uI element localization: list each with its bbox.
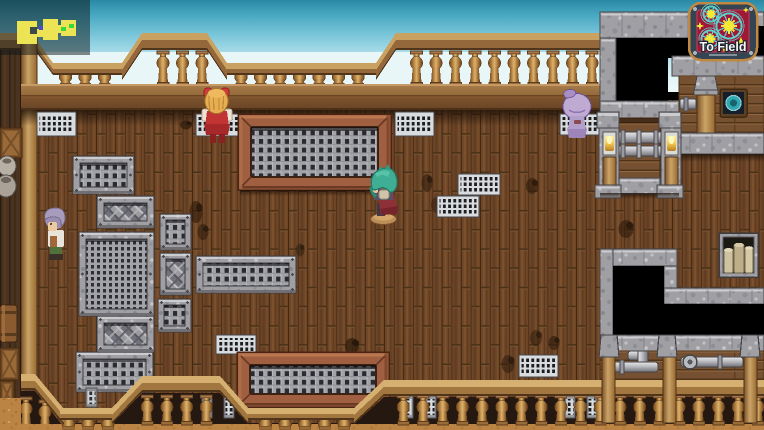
svg-text:To Field: To Field [700,40,747,54]
